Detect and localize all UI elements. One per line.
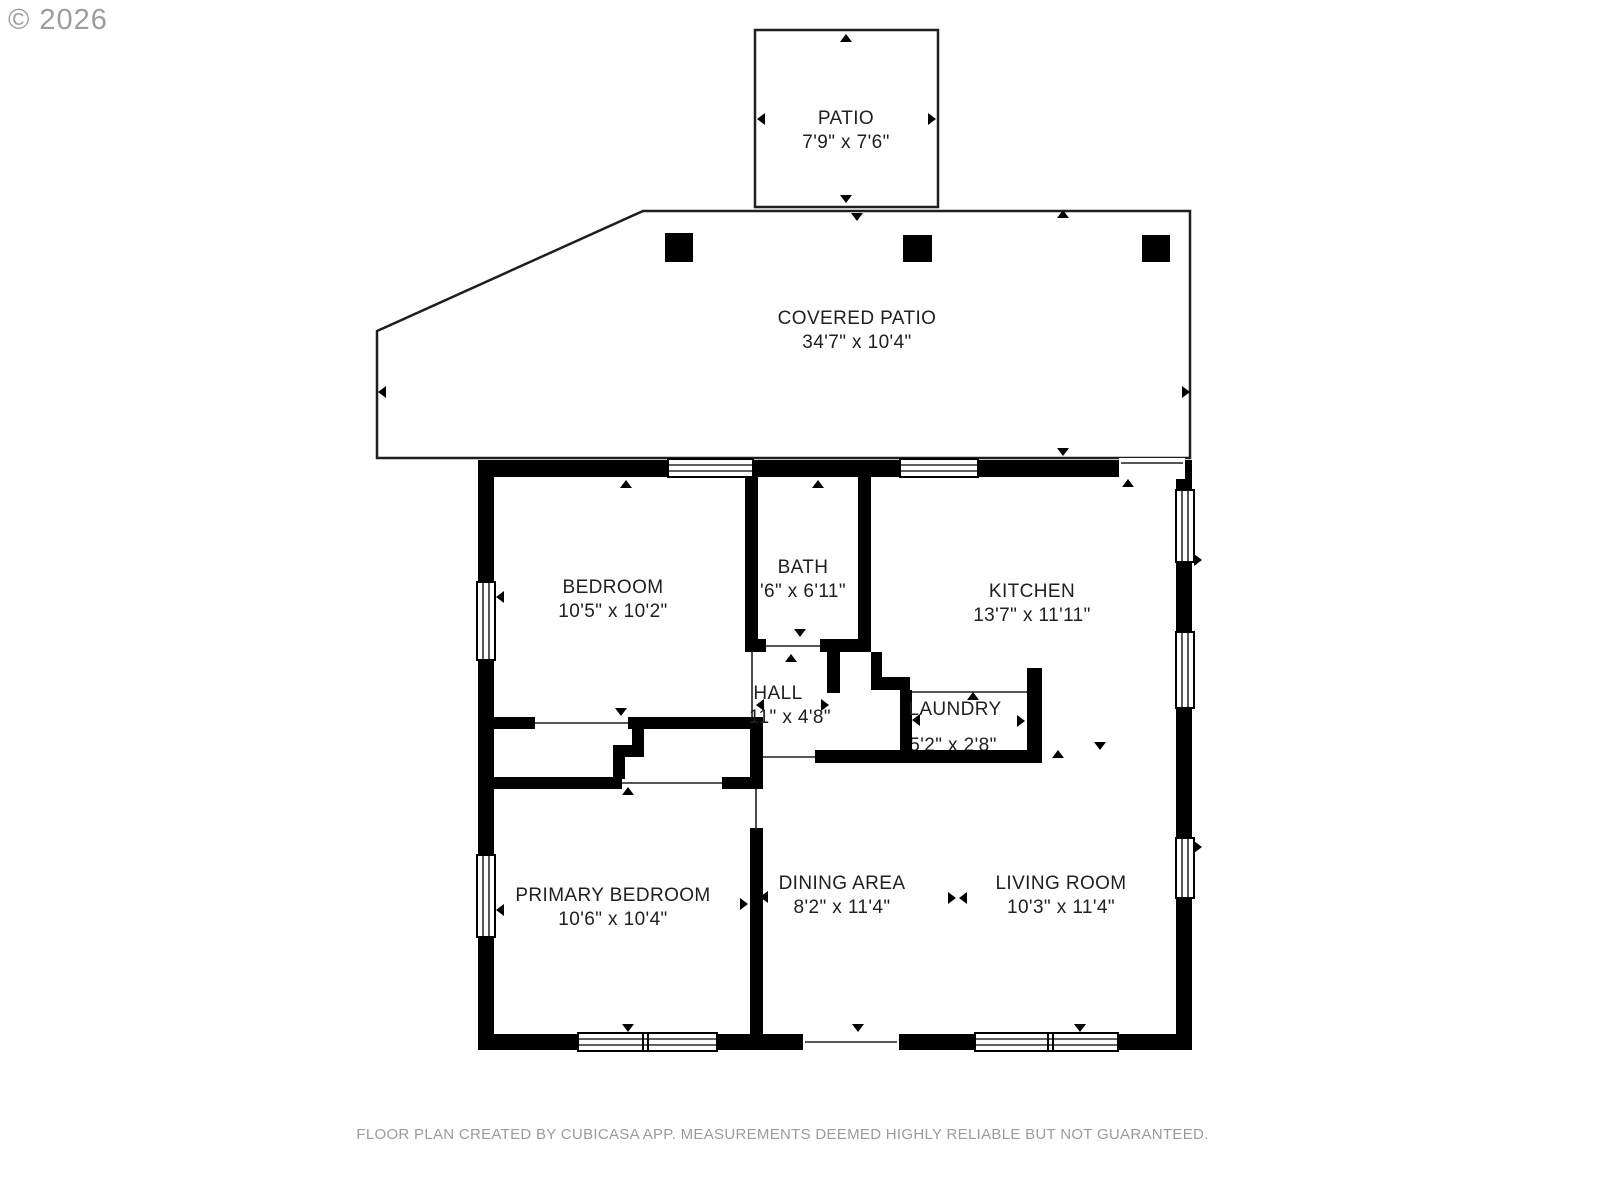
room-label-bath: BATH '6" x 6'11" <box>760 556 846 604</box>
room-label-dining-area: DINING AREA 8'2" x 11'4" <box>779 872 906 920</box>
room-dims: 34'7" x 10'4" <box>778 331 937 355</box>
room-label-living-room: LIVING ROOM 10'3" x 11'4" <box>995 872 1126 920</box>
room-name: COVERED PATIO <box>778 307 937 331</box>
copyright-text: © 2026 <box>8 4 108 37</box>
room-dims: 8'2" x 11'4" <box>779 896 906 920</box>
room-label-bedroom: BEDROOM 10'5" x 10'2" <box>558 576 667 624</box>
room-dims: 13'7" x 11'11" <box>973 604 1091 628</box>
room-name: KITCHEN <box>973 580 1091 604</box>
room-dims: 10'3" x 11'4" <box>995 896 1126 920</box>
floor-plan-page: { "copyright": "© 2026", "footer": "FLOO… <box>0 0 1600 1200</box>
room-name: PRIMARY BEDROOM <box>515 884 710 908</box>
room-name: LIVING ROOM <box>995 872 1126 896</box>
room-label-laundry: LAUNDRY <box>908 698 1001 722</box>
room-name: BEDROOM <box>558 576 667 600</box>
room-label-covered-patio: COVERED PATIO 34'7" x 10'4" <box>778 307 937 355</box>
room-dims: '6" x 6'11" <box>760 580 846 604</box>
room-name: PATIO <box>802 107 889 131</box>
room-label-kitchen: KITCHEN 13'7" x 11'11" <box>973 580 1091 628</box>
room-dims: 7'9" x 7'6" <box>802 131 889 155</box>
room-labels-layer: © 2026 PATIO 7'9" x 7'6" COVERED PATIO 3… <box>0 0 1600 1200</box>
room-label-primary-bedroom: PRIMARY BEDROOM 10'6" x 10'4" <box>515 884 710 932</box>
room-name: DINING AREA <box>779 872 906 896</box>
room-label-patio: PATIO 7'9" x 7'6" <box>802 107 889 155</box>
room-name: HALL <box>753 682 802 706</box>
room-dims: 10'6" x 10'4" <box>515 908 710 932</box>
hall-dims-label: 11" x 4'8" <box>749 706 831 730</box>
room-name: BATH <box>760 556 846 580</box>
room-label-hall: HALL <box>753 682 802 706</box>
room-name: LAUNDRY <box>908 698 1001 722</box>
footer-disclaimer: FLOOR PLAN CREATED BY CUBICASA APP. MEAS… <box>0 1126 1565 1143</box>
room-dims: 10'5" x 10'2" <box>558 600 667 624</box>
